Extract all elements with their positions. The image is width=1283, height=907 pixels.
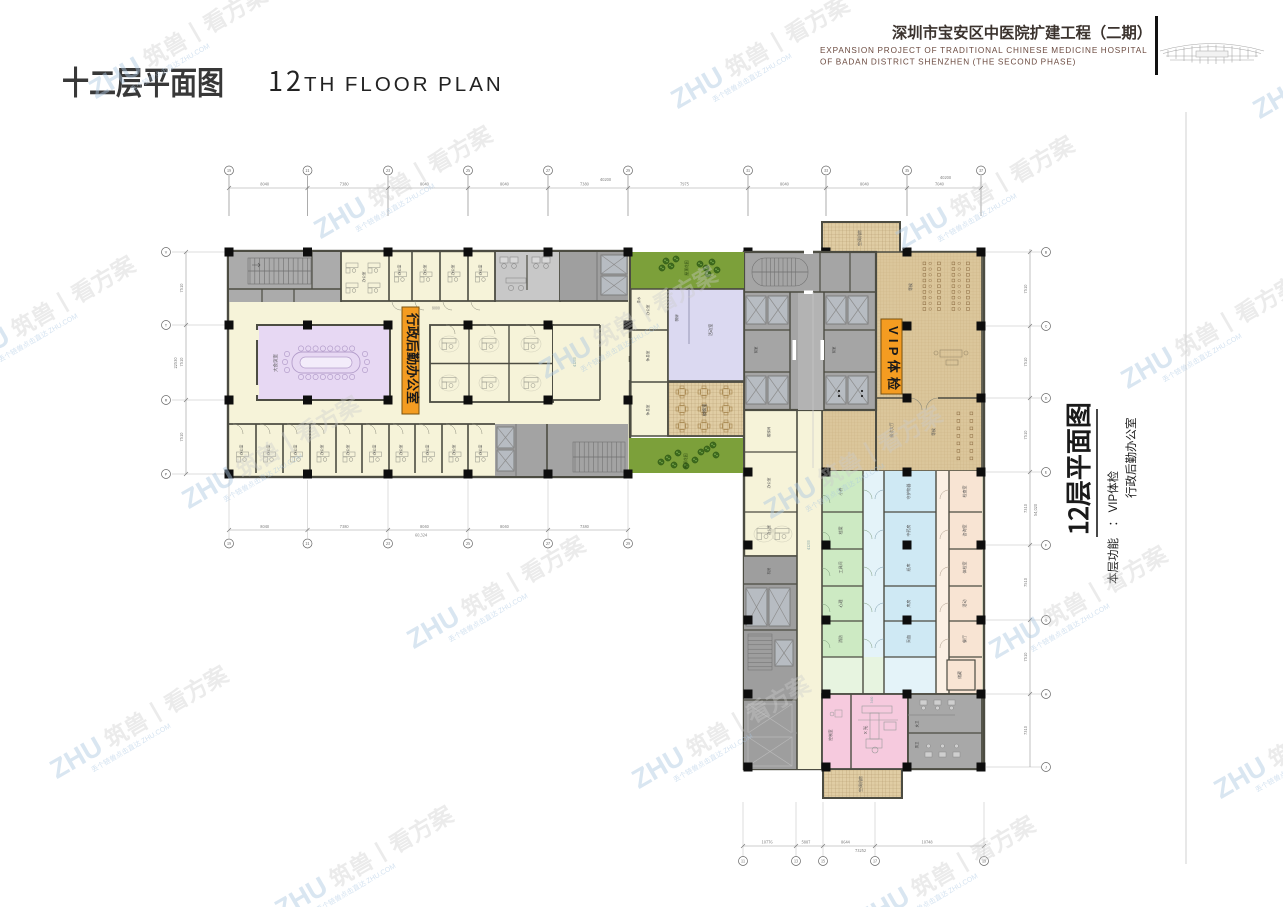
svg-text:7510: 7510 bbox=[179, 283, 185, 293]
svg-text:办公室: 办公室 bbox=[397, 264, 403, 275]
svg-text:空调机房: 空调机房 bbox=[856, 230, 863, 246]
svg-text:31: 31 bbox=[746, 169, 750, 174]
svg-text:H: H bbox=[1045, 693, 1048, 698]
svg-text:25: 25 bbox=[466, 542, 470, 547]
svg-text:男卫: 男卫 bbox=[914, 741, 919, 748]
svg-text:控制室: 控制室 bbox=[828, 729, 834, 741]
svg-text:办公室: 办公室 bbox=[766, 524, 771, 535]
svg-text:办公室: 办公室 bbox=[372, 444, 378, 455]
svg-text:7510: 7510 bbox=[179, 357, 185, 367]
svg-text:8040: 8040 bbox=[500, 182, 510, 188]
svg-text:27: 27 bbox=[546, 169, 550, 174]
svg-text:8040: 8040 bbox=[260, 182, 270, 188]
svg-text:8040: 8040 bbox=[500, 524, 510, 530]
svg-text:前室: 前室 bbox=[831, 346, 836, 353]
svg-text:R: R bbox=[165, 399, 168, 404]
svg-text:储藏: 储藏 bbox=[957, 671, 963, 679]
svg-text:工具间: 工具间 bbox=[837, 562, 844, 574]
svg-text:空调机房: 空调机房 bbox=[857, 776, 864, 792]
svg-text:机房: 机房 bbox=[766, 567, 771, 574]
svg-text:10776: 10776 bbox=[762, 840, 774, 846]
svg-text:7510: 7510 bbox=[1023, 652, 1029, 662]
svg-text:办公室: 办公室 bbox=[478, 444, 484, 455]
svg-text:办公室: 办公室 bbox=[478, 264, 484, 275]
svg-text:棋牌: 棋牌 bbox=[674, 314, 680, 322]
svg-text:中药房: 中药房 bbox=[905, 525, 912, 537]
svg-text:40200: 40200 bbox=[940, 175, 952, 181]
svg-text:22530: 22530 bbox=[173, 357, 179, 369]
svg-text:办公室: 办公室 bbox=[450, 264, 456, 275]
svg-text:等候: 等候 bbox=[908, 283, 914, 291]
svg-text:办公室: 办公室 bbox=[451, 444, 457, 455]
svg-text:7510: 7510 bbox=[1023, 430, 1029, 440]
svg-text:J: J bbox=[1045, 766, 1047, 771]
svg-text:办公室: 办公室 bbox=[422, 264, 428, 275]
svg-text:深圳市宝安区中医院扩建工程（二期）: 深圳市宝安区中医院扩建工程（二期） bbox=[892, 21, 1152, 43]
svg-text:41200: 41200 bbox=[807, 540, 812, 550]
svg-text:档案: 档案 bbox=[837, 527, 844, 535]
svg-text:19: 19 bbox=[227, 542, 231, 547]
svg-text:21: 21 bbox=[306, 169, 310, 174]
svg-text:54,020: 54,020 bbox=[1033, 503, 1039, 516]
svg-text:11: 11 bbox=[741, 860, 745, 865]
svg-text:8644: 8644 bbox=[841, 840, 851, 846]
svg-text:休息室: 休息室 bbox=[645, 350, 651, 361]
svg-text:活动: 活动 bbox=[961, 600, 968, 608]
svg-text:体检室: 体检室 bbox=[961, 562, 968, 574]
svg-text:休息室: 休息室 bbox=[645, 404, 651, 415]
svg-text:60,324: 60,324 bbox=[415, 533, 428, 539]
svg-text:楼梯间: 楼梯间 bbox=[766, 426, 772, 437]
svg-text:7510: 7510 bbox=[1023, 357, 1029, 367]
svg-text:餐厅: 餐厅 bbox=[961, 635, 968, 643]
svg-text:前室: 前室 bbox=[753, 346, 758, 353]
svg-text:办公室: 办公室 bbox=[425, 444, 431, 455]
svg-text:7975: 7975 bbox=[680, 182, 689, 188]
svg-text:消防: 消防 bbox=[837, 635, 844, 643]
svg-text:行政后勤办公室: 行政后勤办公室 bbox=[1123, 418, 1139, 499]
svg-text:C: C bbox=[1045, 325, 1048, 330]
svg-text:17: 17 bbox=[873, 860, 877, 865]
svg-text:73252: 73252 bbox=[855, 848, 867, 854]
svg-text:纸库: 纸库 bbox=[905, 564, 912, 572]
svg-text:办公室: 办公室 bbox=[345, 444, 351, 455]
svg-text:10748: 10748 bbox=[922, 840, 934, 846]
svg-text:25: 25 bbox=[466, 169, 470, 174]
svg-text:行政后勤办公室: 行政后勤办公室 bbox=[404, 312, 423, 404]
svg-text:7510: 7510 bbox=[179, 432, 185, 442]
svg-text:办公室: 办公室 bbox=[398, 444, 404, 455]
svg-text:库房: 库房 bbox=[905, 600, 912, 608]
svg-text:咨询室: 咨询室 bbox=[961, 525, 968, 537]
svg-text:7310: 7310 bbox=[1023, 725, 1029, 735]
svg-text:大会议室: 大会议室 bbox=[272, 354, 279, 372]
svg-text:7380: 7380 bbox=[580, 524, 590, 530]
svg-text:19: 19 bbox=[227, 169, 231, 174]
svg-text:21: 21 bbox=[306, 542, 310, 547]
svg-text:办公室: 办公室 bbox=[319, 444, 325, 455]
svg-text:活动室: 活动室 bbox=[707, 324, 714, 337]
svg-text:35: 35 bbox=[905, 169, 909, 174]
svg-text:7510: 7510 bbox=[1023, 577, 1029, 587]
svg-text:33: 33 bbox=[824, 169, 828, 174]
svg-text:EXPANSION PROJECT OF TRADITION: EXPANSION PROJECT OF TRADITIONAL CHINESE… bbox=[820, 44, 1148, 56]
svg-text:7510: 7510 bbox=[1023, 284, 1029, 294]
svg-text:心理: 心理 bbox=[837, 600, 844, 608]
svg-text:8040: 8040 bbox=[780, 182, 790, 188]
svg-text:8040: 8040 bbox=[420, 524, 430, 530]
svg-text:7380: 7380 bbox=[340, 524, 350, 530]
svg-text:检查室: 检查室 bbox=[961, 486, 968, 498]
svg-text:7040: 7040 bbox=[935, 182, 945, 188]
svg-text:守护物器: 守护物器 bbox=[905, 484, 912, 500]
svg-text:8040: 8040 bbox=[860, 182, 870, 188]
svg-text:5887: 5887 bbox=[802, 840, 812, 846]
svg-text:屋顶花园: 屋顶花园 bbox=[683, 453, 689, 468]
svg-text:OF BADAN DISTRICT SHENZHEN (TH: OF BADAN DISTRICT SHENZHEN (THE SECOND P… bbox=[820, 56, 1076, 68]
svg-text:8040: 8040 bbox=[260, 524, 270, 530]
svg-text:7380: 7380 bbox=[340, 182, 350, 188]
svg-text:12层平面图: 12层平面图 bbox=[1059, 402, 1096, 535]
svg-text:7380: 7380 bbox=[580, 182, 590, 188]
svg-text:女卫: 女卫 bbox=[914, 720, 919, 727]
svg-text:23: 23 bbox=[386, 542, 390, 547]
svg-text:7310: 7310 bbox=[1023, 503, 1029, 513]
svg-text:29: 29 bbox=[626, 542, 630, 547]
svg-text:采血: 采血 bbox=[905, 635, 912, 643]
svg-text:29: 29 bbox=[626, 169, 630, 174]
svg-text:3400: 3400 bbox=[870, 696, 874, 703]
svg-text:棋牌室: 棋牌室 bbox=[701, 404, 708, 417]
svg-text:D: D bbox=[1045, 397, 1048, 402]
svg-text:8000: 8000 bbox=[432, 307, 440, 312]
svg-text:X 光: X 光 bbox=[862, 725, 869, 734]
svg-text:40200: 40200 bbox=[600, 177, 612, 183]
svg-text:办公室: 办公室 bbox=[361, 271, 367, 282]
svg-text:15: 15 bbox=[821, 860, 825, 865]
svg-text:13: 13 bbox=[794, 860, 798, 865]
